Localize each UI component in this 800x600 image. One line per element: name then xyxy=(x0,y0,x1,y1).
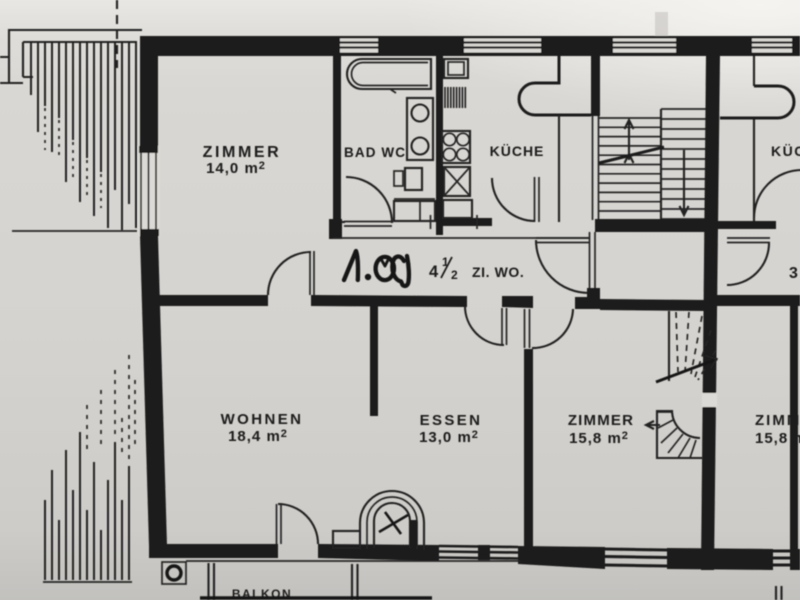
svg-text:ZI. WO.: ZI. WO. xyxy=(472,264,524,280)
svg-text:BAD WC: BAD WC xyxy=(344,145,406,160)
svg-text:1: 1 xyxy=(442,255,449,269)
svg-text:18,4 m2: 18,4 m2 xyxy=(228,428,288,445)
svg-text:13,0 m2: 13,0 m2 xyxy=(419,429,479,446)
svg-text:4: 4 xyxy=(429,263,439,281)
svg-text:WOHNEN: WOHNEN xyxy=(221,411,304,428)
svg-text:KÜCHE: KÜCHE xyxy=(490,143,545,159)
svg-text:15,8 m2: 15,8 m2 xyxy=(569,430,629,447)
svg-text:2: 2 xyxy=(451,268,458,282)
svg-text:KÜCH: KÜCH xyxy=(771,143,800,159)
svg-text:ZIMMER: ZIMMER xyxy=(568,412,634,429)
svg-text:3: 3 xyxy=(789,265,798,282)
svg-text:14,0 m2: 14,0 m2 xyxy=(206,160,266,177)
svg-text:ZIMMER: ZIMMER xyxy=(203,144,282,161)
svg-text:ESSEN: ESSEN xyxy=(420,412,483,429)
